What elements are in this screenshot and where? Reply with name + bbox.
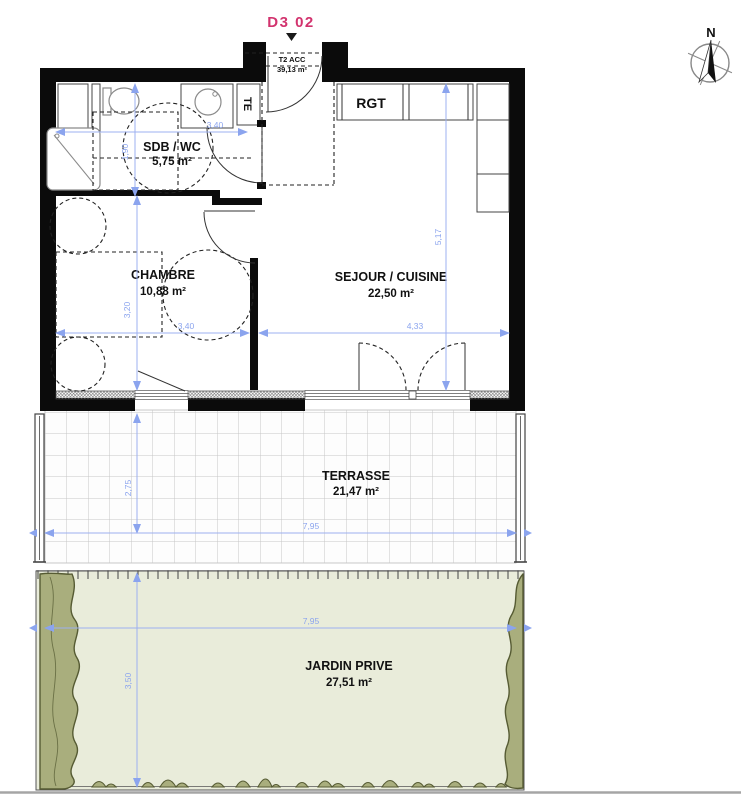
sejour-name: SEJOUR / CUISINE bbox=[335, 270, 448, 284]
unit-code: D3 02 bbox=[267, 14, 315, 31]
te-label: TE bbox=[241, 97, 253, 111]
jardin-fence-hatch bbox=[36, 570, 524, 579]
dim-chambre-depth: 3,20 bbox=[122, 301, 132, 318]
dim-sdb-width: 3,40 bbox=[207, 120, 224, 130]
entry-marker-icon bbox=[286, 33, 297, 41]
compass-north-label: N bbox=[706, 25, 715, 40]
window-sills bbox=[56, 391, 509, 400]
toilet-icon bbox=[103, 88, 139, 115]
shower-icon bbox=[47, 128, 100, 190]
chambre-room: CHAMBRE 10,88 m² bbox=[50, 198, 255, 391]
dim-sejour-depth: 5,17 bbox=[433, 228, 443, 245]
dim-terrasse-depth: 2,75 bbox=[123, 479, 133, 496]
sdb-room: TE SDB / WC 5,75 m² bbox=[47, 84, 266, 193]
jardin-area bbox=[36, 570, 524, 790]
compass-icon: N bbox=[688, 25, 732, 85]
terrasse-name: TERRASSE bbox=[322, 469, 390, 483]
dim-terrasse-width: 7,95 bbox=[303, 521, 320, 531]
terrasse-area bbox=[33, 410, 527, 563]
dim-sejour-width: 4,33 bbox=[407, 321, 424, 331]
sdb-door bbox=[207, 120, 266, 189]
chambre-name: CHAMBRE bbox=[131, 268, 195, 282]
rgt-label: RGT bbox=[356, 95, 386, 111]
floorplan-page: D3 02 T2 ACC 39,13 m² TE bbox=[0, 0, 741, 800]
kitchen-units bbox=[477, 84, 509, 212]
sdb-area: 5,75 m² bbox=[152, 156, 192, 168]
dim-jardin-depth: 3,50 bbox=[123, 672, 133, 689]
terrasse-right-divider bbox=[514, 414, 527, 562]
dim-jardin-width: 7,95 bbox=[303, 616, 320, 626]
terrasse-left-divider bbox=[33, 414, 46, 562]
sdb-name: SDB / WC bbox=[143, 140, 201, 154]
jardin-area: 27,51 m² bbox=[326, 677, 372, 689]
sejour-room: RGT SEJOUR / CUISINE 22,50 m² bbox=[262, 82, 509, 390]
total-area: 39,13 m² bbox=[277, 65, 308, 74]
chambre-area: 10,88 m² bbox=[140, 286, 186, 298]
unit-header: D3 02 T2 ACC 39,13 m² bbox=[267, 14, 315, 74]
terrasse-area: 21,47 m² bbox=[333, 486, 379, 498]
type-label: T2 ACC bbox=[279, 55, 306, 64]
floorplan-svg: D3 02 T2 ACC 39,13 m² TE bbox=[0, 0, 741, 800]
jardin-name: JARDIN PRIVE bbox=[305, 659, 393, 673]
french-doors bbox=[359, 343, 465, 390]
dim-sdb-depth: 1,90 bbox=[120, 143, 130, 160]
dim-chambre-width: 3,40 bbox=[178, 321, 195, 331]
sejour-area: 22,50 m² bbox=[368, 288, 414, 300]
